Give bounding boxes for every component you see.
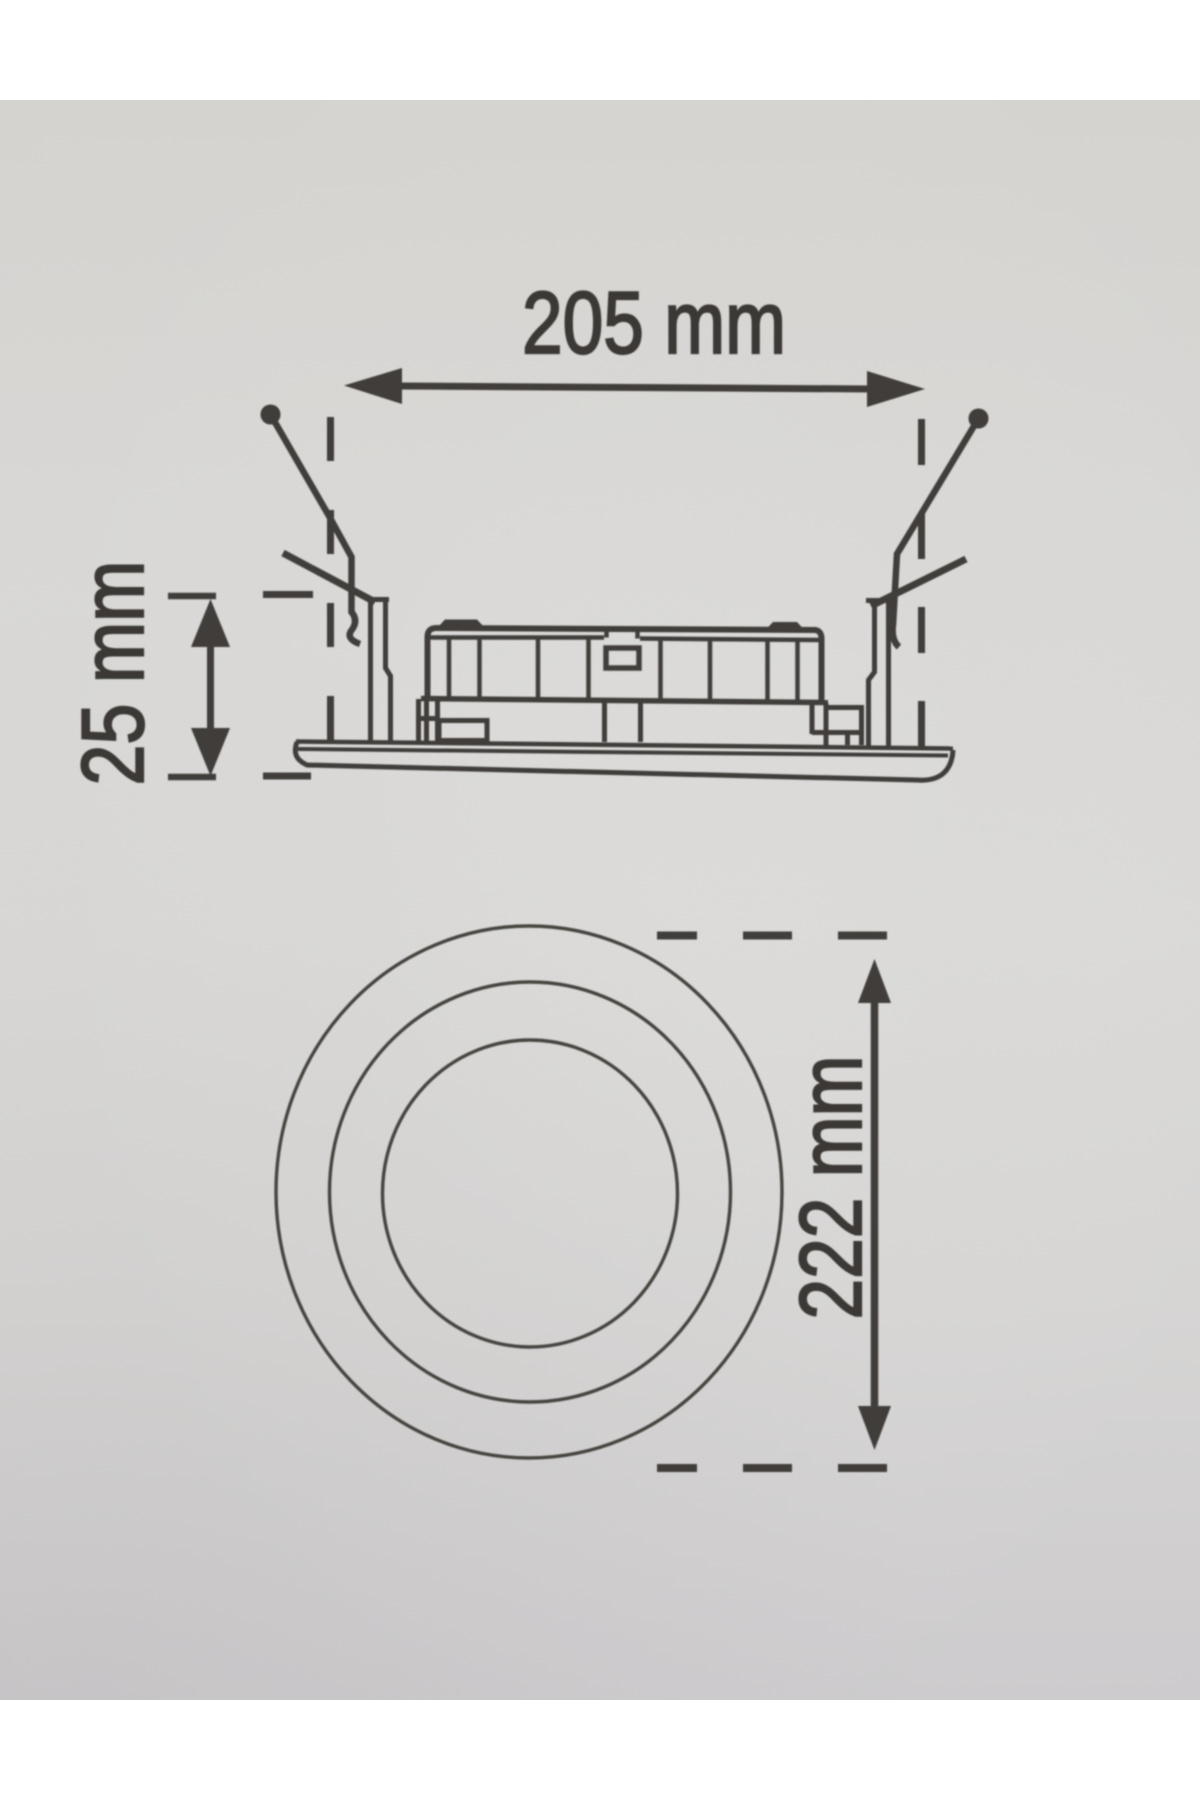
svg-text:205 mm: 205 mm (522, 273, 786, 372)
svg-text:25 mm: 25 mm (63, 561, 162, 786)
svg-text:222 mm: 222 mm (781, 1056, 880, 1320)
